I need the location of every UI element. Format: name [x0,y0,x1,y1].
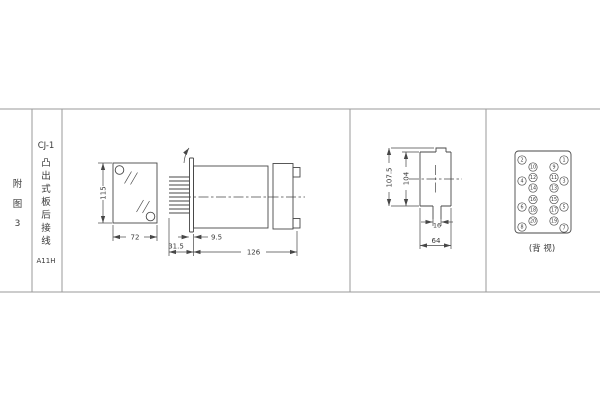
dim-label-16: 16 [433,223,441,230]
terminal-13: 13 [550,184,558,192]
terminal-number: 3 [562,179,565,185]
dim-label-9p5: 9.5 [211,234,222,242]
terminal-number: 7 [562,226,565,232]
mounting-hole-top-left [115,166,124,175]
terminal-17: 17 [550,206,558,214]
desc-char: 接 [41,222,51,234]
terminal-number: 16 [530,197,536,203]
figure-label-char: 图 [13,199,23,210]
terminal-number: 14 [530,186,536,192]
terminal-number: 6 [520,205,523,211]
technical-drawing-canvas: 附 图 3 CJ-1 凸 出 式 板 后 接 线 A11H 115 [0,0,600,400]
back-view-caption: (背 视) [529,243,555,254]
relay-side-view: 9.5 31.5 126 [168,148,305,257]
mounting-flange [190,158,194,232]
dim-label-115: 115 [99,186,107,199]
model-description-column: CJ-1 凸 出 式 板 后 接 线 A11H [37,141,56,265]
dim-label-104: 104 [402,171,410,185]
terminal-3: 3 [560,177,568,185]
rear-profile-view: 107.5 104 16 64 [385,148,462,249]
terminal-5: 5 [560,203,568,211]
terminal-number: 9 [552,165,555,171]
dim-72: 72 [113,225,157,242]
dim-label-72: 72 [131,234,140,242]
dim-16: 16 [421,219,453,230]
cutout-outline [113,163,157,223]
terminal-2: 2 [518,156,526,164]
figure-label-column: 附 图 3 [13,178,23,229]
terminal-16: 16 [529,195,537,203]
panel-leader-arrow [184,148,189,163]
model-label: CJ-1 [38,141,55,151]
terminal-6: 6 [518,203,526,211]
sheet-table-borders [0,109,600,292]
figure-number: 3 [15,219,21,229]
dim-115: 115 [98,163,112,223]
terminal-19: 19 [550,217,558,225]
desc-char: 凸 [41,158,51,169]
terminal-number: 19 [551,219,557,225]
mounting-hole-bottom-right [146,212,155,221]
terminal-9: 9 [550,163,558,171]
terminal-number: 12 [530,175,536,181]
terminal-10: 10 [529,163,537,171]
terminal-15: 15 [550,195,558,203]
dim-label-107p5: 107.5 [385,167,393,187]
desc-char: 板 [41,196,51,208]
rear-terminal-view: 2 4 6 8 1 3 5 7 10 12 14 16 18 20 9 11 1… [515,151,571,254]
terminal-number: 15 [551,197,557,203]
terminal-number: 2 [520,158,523,164]
dim-126: 126 [194,231,298,257]
terminal-number: 18 [530,208,536,214]
terminal-number: 4 [520,179,523,185]
terminal-number: 17 [551,208,557,214]
dim-9p5: 9.5 [178,234,222,242]
figure-label-char: 附 [13,178,23,190]
dim-label-126: 126 [247,249,261,257]
terminal-number: 10 [530,165,536,171]
terminal-number: 1 [562,158,565,164]
terminal-8: 8 [518,223,526,231]
terminal-number: 11 [551,175,557,181]
terminal-18: 18 [529,206,537,214]
terminal-number: 8 [520,225,523,231]
desc-char: 后 [41,210,51,221]
dim-label-31p5: 31.5 [168,242,184,250]
terminal-number: 20 [530,219,536,225]
drawing-sheet: 附 图 3 CJ-1 凸 出 式 板 后 接 线 A11H 115 [0,0,600,400]
terminal-number: 13 [551,186,557,192]
terminal-20: 20 [529,217,537,225]
hatch-marks [125,172,150,214]
rear-clip-bottom [293,219,300,229]
panel-cutout-view: 115 72 [98,163,157,242]
terminal-number: 5 [562,205,565,211]
rear-cap [273,164,293,230]
desc-char: 线 [41,235,51,247]
terminal-4: 4 [518,177,526,185]
type-code: A11H [37,257,56,265]
desc-char: 出 [41,170,51,182]
terminal-11: 11 [550,173,558,181]
terminal-7: 7 [560,224,568,232]
dim-label-64: 64 [432,237,441,245]
terminal-pins [169,177,190,213]
terminal-14: 14 [529,184,537,192]
terminal-1: 1 [560,156,568,164]
rear-clip-top [293,168,300,178]
desc-char: 式 [41,183,51,195]
terminal-12: 12 [529,173,537,181]
